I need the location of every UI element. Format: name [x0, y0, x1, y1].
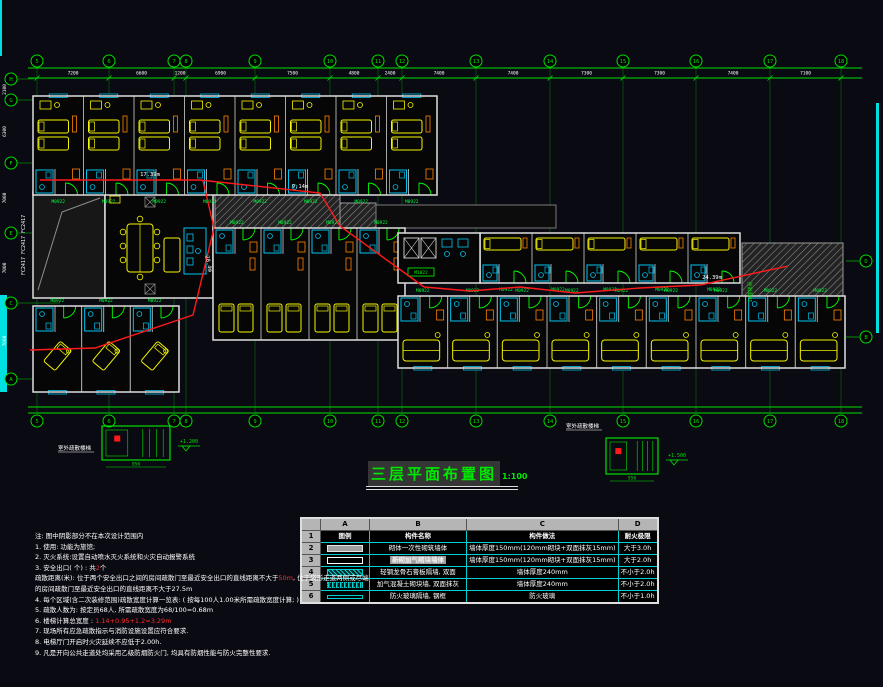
grid-bubble-E: E — [5, 227, 17, 239]
rect-element — [597, 296, 647, 368]
title-underline — [366, 489, 518, 490]
rect-element — [876, 103, 879, 333]
room-unit: M0922 — [497, 288, 547, 370]
room-unit: M0922 — [130, 298, 179, 394]
room-unit: M0922 — [336, 94, 387, 205]
dimension-text: 6600 — [136, 71, 147, 77]
grid-bubble-A: A — [5, 373, 17, 385]
text-element: 18 — [838, 59, 845, 65]
rect-element — [646, 296, 696, 368]
rect-element — [636, 233, 688, 283]
distance-label: 24.39m — [702, 275, 723, 281]
rect-element — [336, 96, 387, 195]
rect-element — [448, 296, 498, 368]
text-element: G — [9, 98, 12, 104]
rect-element — [795, 296, 845, 368]
note-line: 2. 灭火系统:设置自动喷水灭火系统和火灾自动报警系统 — [35, 552, 369, 563]
td-element: 墙体厚度150mm(120mm砌块+双面抹灰15mm) — [467, 555, 619, 567]
grid-bubble-5-bottom: 5 — [31, 415, 43, 427]
drawing-scale: 1:100 — [502, 472, 527, 481]
note-line: 3. 安全出口( 个) : 共2个 — [35, 563, 369, 574]
lounge-room — [105, 192, 213, 298]
door-label: M0922 — [203, 199, 217, 205]
grid-bubble-11-bottom: 11 — [372, 415, 384, 427]
td-element: 砌体一次性砌筑墙体 — [370, 543, 467, 555]
span-element: 1.14+0.95+1.2=3.29m — [95, 617, 171, 625]
td-element: 轻钢龙骨石膏板隔墙, 双面 — [370, 567, 467, 579]
grid-bubble-14-bottom: 14 — [544, 415, 556, 427]
span-element: 3. 安全出口( 个) : 共 — [35, 564, 96, 572]
stair-label: 1#楼梯间 — [747, 281, 754, 302]
text-element: F — [9, 161, 12, 167]
path-element — [670, 460, 678, 465]
grid-bubble-11: 11 — [372, 55, 384, 67]
grid-bubble-7: 7 — [168, 55, 180, 67]
grid-bubble-16-bottom: 16 — [690, 415, 702, 427]
td-element: 大于2.0h — [618, 555, 658, 567]
note-line: 注: 图中阴影部分不在本次设计范围内 — [35, 531, 369, 542]
room-unit: M0922 — [547, 288, 597, 370]
door-label: M0922 — [148, 298, 162, 304]
grid-bubble-8-bottom: 8 — [180, 415, 192, 427]
door-label: M0922 — [764, 288, 778, 294]
level-mark: +1.200 — [180, 439, 198, 445]
note-line: 8. 电梯厅门开启时火灾延续不应低于2.00h. — [35, 637, 369, 648]
rect-element — [398, 296, 448, 368]
td-element: A — [321, 518, 370, 531]
distance-label: 9.14m — [292, 184, 309, 190]
grid-bubble-7-bottom: 7 — [168, 415, 180, 427]
room-unit: M0922 — [584, 233, 636, 293]
dimension-text: 4800 — [349, 71, 360, 77]
door-label: M0922 — [230, 220, 244, 226]
text-element: D — [864, 259, 867, 265]
grid-bubble-13: 13 — [470, 55, 482, 67]
text-element: 8 — [184, 59, 187, 65]
grid-bubble-15: 15 — [617, 55, 629, 67]
room-unit: M0922 — [387, 94, 438, 205]
text-element: 15 — [620, 59, 627, 65]
span-element: 疏散距离(米): 位于两个安全出口之间的房间疏散门至最近安全出口的直线距离不大于 — [35, 574, 278, 582]
grid-bubble-10: 10 — [324, 55, 336, 67]
door-label: M0922 — [664, 288, 678, 294]
rect-element — [130, 306, 179, 392]
td-element: 构件名称 — [370, 531, 467, 543]
drawing-title: 三层平面布置图 — [368, 461, 500, 486]
td-element: 加气混凝土砌块墙, 双面抹灰 — [370, 579, 467, 591]
rect-element — [82, 306, 131, 392]
dimension-text: 2400 — [385, 71, 396, 77]
stair-detail-label: 室外疏散楼梯 — [566, 422, 600, 430]
level-mark: +1.500 — [668, 453, 686, 459]
rect-element — [606, 438, 658, 474]
text-element: 7 — [172, 419, 175, 425]
text-element: 14 — [547, 59, 554, 65]
td-element: 耐火极限 — [618, 531, 658, 543]
span-element: 7. 现场所有应急疏散指示与消防设施设置应符合要求. — [35, 627, 188, 635]
room-unit: M0922 — [82, 298, 131, 394]
room-unit: M0922 — [532, 233, 584, 293]
room-unit: M0922 — [33, 94, 84, 205]
grid-bubble-16: 16 — [690, 55, 702, 67]
grid-bubble-12-bottom: 12 — [396, 415, 408, 427]
text-element: 14 — [547, 419, 554, 425]
text-element: 8 — [184, 419, 187, 425]
drawing-title-block: 三层平面布置图1:100 — [368, 461, 527, 486]
td-element: 不小于2.0h — [618, 567, 658, 579]
dimension-text: 7300 — [581, 71, 592, 77]
block-right-bottom: M0922M0922M0922M0922M0922M0922M0922M0922… — [398, 288, 845, 370]
note-line: 1. 使用: 功能为旅馆; — [35, 542, 369, 553]
text-element: H — [9, 77, 12, 83]
door-label: M0922 — [278, 220, 292, 226]
room-unit: M0922 — [696, 288, 746, 370]
note-line: 5. 疏散人数为: 按定员68人, 所需疏散宽度为68/100=0.68m — [35, 605, 369, 616]
door-label: M0922 — [405, 199, 419, 205]
td-element: 不小于1.0h — [618, 591, 658, 604]
room-unit: M0922 — [84, 94, 135, 205]
text-element: 950 — [628, 476, 636, 482]
td-element: 墙体厚度240mm — [467, 579, 619, 591]
td-element: D — [618, 518, 658, 531]
grid-bubble-C: C — [5, 297, 17, 309]
rect-element — [114, 436, 120, 442]
stair-detail-2: 室外疏散楼梯950+1.500 — [566, 422, 688, 482]
room-unit: M0922 — [480, 233, 532, 293]
general-notes: 注: 图中阴影部分不在本次设计范围内1. 使用: 功能为旅馆;2. 灭火系统:设… — [35, 531, 369, 658]
rect-element — [0, 0, 2, 56]
text-element: 6 — [107, 59, 110, 65]
grid-bubble-H: H — [5, 73, 17, 85]
rect-element — [480, 233, 532, 283]
rect-element — [340, 203, 376, 228]
dimension-text: 6300 — [2, 126, 8, 137]
door-label: M0922 — [374, 220, 388, 226]
door-label: M0922 — [102, 199, 116, 205]
door-label: M0922 — [51, 199, 65, 205]
td-element: B — [370, 518, 467, 531]
text-element: 7 — [172, 59, 175, 65]
grid-bubble-17: 17 — [764, 55, 776, 67]
room-unit: M0922 — [134, 94, 185, 205]
grid-bubble-D: D — [860, 255, 872, 267]
text-element: 16 — [693, 419, 700, 425]
span-element: , 位于袋形走道两侧或尽端 — [293, 574, 369, 582]
text-element: 6 — [107, 419, 110, 425]
dimension-text: 7400 — [508, 71, 519, 77]
td-element: 防火玻璃 — [467, 591, 619, 604]
room-unit: M0922 — [398, 288, 448, 370]
text-element: E — [9, 231, 12, 237]
room-unit: M0922 — [795, 288, 845, 370]
td-element — [301, 518, 321, 531]
grid-bubble-15-bottom: 15 — [617, 415, 629, 427]
note-line: 7. 现场所有应急疏散指示与消防设施设置应符合要求. — [35, 626, 369, 637]
span-element: 9. 凡是开向公共走道处均采用乙级防烟防火门, 均具有防烟性能与防火完整性要求. — [35, 649, 270, 657]
door-label: M0922 — [253, 199, 267, 205]
td-element: 不小于2.0h — [618, 579, 658, 591]
span-element: 4. 每个区域(含二次装修范围)疏散宽度计算一览表: ( 按每100人1.00米… — [35, 596, 299, 604]
rect-element — [584, 233, 636, 283]
span-element: 6. 楼梯计算总宽度 : — [35, 617, 95, 625]
shaded-void-room — [33, 192, 105, 298]
grid-bubble-8: 8 — [180, 55, 192, 67]
door-label: M0922 — [714, 288, 728, 294]
dimension-text: 6900 — [215, 71, 226, 77]
text-element: 11 — [375, 59, 382, 65]
dimension-text: 7000 — [2, 262, 8, 273]
door-label: M0922 — [515, 288, 529, 294]
span-element: 50m — [278, 574, 293, 582]
room-unit: M0922 — [646, 288, 696, 370]
text-element: 9 — [253, 419, 256, 425]
note-line: 9. 凡是开向公共走道处均采用乙级防烟防火门, 均具有防烟性能与防火完整性要求. — [35, 648, 369, 659]
grid-bubble-18-bottom: 18 — [835, 415, 847, 427]
span-element: 2. 灭火系统:设置自动喷水灭火系统和火灾自动报警系统 — [35, 553, 195, 561]
rect-element — [387, 96, 438, 195]
rect-element — [213, 228, 261, 340]
note-line: 6. 楼梯计算总宽度 : 1.14+0.95+1.2=3.29m — [35, 616, 369, 627]
span-element: 8. 电梯厅门开启时火灾延续不应低于2.00h. — [35, 638, 161, 646]
rect-element — [376, 205, 556, 228]
text-element: 11 — [375, 419, 382, 425]
door-label: M0922 — [304, 199, 318, 205]
span-element: 1. 使用: 功能为旅馆; — [35, 543, 95, 551]
grid-bubble-9-bottom: 9 — [249, 415, 261, 427]
grid-bubble-10-bottom: 10 — [324, 415, 336, 427]
door-label: M0922 — [354, 199, 368, 205]
grid-bubble-14: 14 — [544, 55, 556, 67]
rect-element — [497, 296, 547, 368]
dimension-text: 7100 — [800, 71, 811, 77]
grid-bubble-B: B — [860, 331, 872, 343]
stair-detail-label: 室外疏散楼梯 — [58, 444, 92, 452]
grid-bubble-6-bottom: 6 — [103, 415, 115, 427]
grid-bubble-6: 6 — [103, 55, 115, 67]
td-element: 墙体厚度240mm — [467, 567, 619, 579]
title-underline — [366, 486, 518, 487]
span-element: 注: 图中阴影部分不在本次设计范围内 — [35, 532, 143, 540]
rect-element — [105, 192, 213, 298]
span-element: 的房间疏散门至最近安全出口的直线距离不大于27.5m — [35, 585, 192, 593]
dimension-text: 7200 — [68, 71, 79, 77]
room-unit: M0922 — [448, 288, 498, 370]
door-label: M0922 — [152, 199, 166, 205]
cad-floor-plan-screen: { "colors":{"grid":"#00e000","wall":"#a8… — [0, 0, 883, 687]
text-element: 10 — [327, 419, 334, 425]
text-element: 13 — [473, 59, 480, 65]
text-element: 12 — [399, 419, 406, 425]
path-element — [182, 446, 190, 451]
grid-bubble-9: 9 — [249, 55, 261, 67]
block-right-top: M0922M0922M0922M0922M0922 — [480, 233, 740, 293]
td-element: 大于3.0h — [618, 543, 658, 555]
text-element: 13 — [473, 419, 480, 425]
rect-element — [235, 96, 286, 195]
span-element: 新砌加气砌块墙体 — [390, 556, 446, 564]
td-element: 新砌加气砌块墙体 — [370, 555, 467, 567]
td-element: 构件做法 — [467, 531, 619, 543]
room-unit: M0922 — [597, 288, 647, 370]
td-element: 防火玻璃隔墙, 钢框 — [370, 591, 467, 604]
grid-bubble-17-bottom: 17 — [764, 415, 776, 427]
text-element: 10 — [327, 59, 334, 65]
rect-element — [610, 442, 627, 470]
block-bottom-left: M0922M0922M0922 — [33, 298, 179, 394]
grid-bubble-18: 18 — [835, 55, 847, 67]
span-element: 个 — [100, 564, 107, 572]
floor-plan-drawing: 5566778899101011111212131314141515161617… — [0, 0, 883, 520]
td-element: 墙体厚度150mm(120mm砌块+双面抹灰15mm) — [467, 543, 619, 555]
text-element: 18 — [838, 419, 845, 425]
text-element: 17 — [767, 419, 774, 425]
grid-bubble-5: 5 — [31, 55, 43, 67]
door-label: M0922 — [51, 298, 65, 304]
rect-element — [309, 228, 357, 340]
dimension-text: 7500 — [287, 71, 298, 77]
text-element: 17 — [767, 59, 774, 65]
window-type-label: FC2417 FC2417 FC2417 — [21, 215, 27, 275]
text-element: 15 — [620, 419, 627, 425]
rect-element — [286, 96, 337, 195]
td-element: C — [467, 518, 619, 531]
rect-element — [615, 448, 621, 454]
room-unit: M0922 — [261, 220, 309, 340]
room-unit: M0922 — [185, 94, 236, 205]
door-label: M0922 — [813, 288, 827, 294]
room-unit: M0922 — [309, 220, 357, 340]
rect-element — [547, 296, 597, 368]
rect-element — [746, 296, 796, 368]
text-element: 9 — [253, 59, 256, 65]
tr-element: ABCD — [301, 518, 658, 531]
block-top-wing: M0922M0922M0922M0922M0922M0922M0922M0922 — [33, 94, 437, 205]
rect-element — [532, 233, 584, 283]
note-line: 4. 每个区域(含二次装修范围)疏散宽度计算一览表: ( 按每100人1.00米… — [35, 595, 369, 606]
dimension-text: 7400 — [728, 71, 739, 77]
elevator-lobby: M1022 — [398, 233, 480, 283]
stair-detail-1: 室外疏散楼梯950+1.200 — [58, 426, 200, 468]
door-label: M0922 — [99, 298, 113, 304]
rect-element — [261, 228, 309, 340]
text-element: 5 — [35, 419, 38, 425]
note-line: 的房间疏散门至最近安全出口的直线距离不大于27.5m — [35, 584, 369, 595]
dimension-text: 2100 — [2, 84, 8, 95]
grid-bubble-13-bottom: 13 — [470, 415, 482, 427]
rect-element — [106, 430, 128, 456]
span-element: 5. 疏散人数为: 按定员68人, 所需疏散宽度为68/100=0.68m — [35, 606, 213, 614]
grid-bubble-F: F — [5, 157, 17, 169]
text-element: M1022 — [414, 270, 428, 276]
distance-label: 17.39m — [140, 172, 161, 178]
rect-element — [696, 296, 746, 368]
room-unit: M0922 — [33, 298, 82, 394]
rect-element — [33, 192, 105, 298]
block-mid-block: M0922M0922M0922M0922 — [213, 220, 405, 340]
text-element: C — [9, 301, 12, 307]
dimension-text: 1200 — [175, 71, 186, 77]
text-element: 5 — [35, 59, 38, 65]
grid-bubble-12: 12 — [396, 55, 408, 67]
dimension-text: 7000 — [2, 192, 8, 203]
text-element: 16 — [693, 59, 700, 65]
room-unit: M0922 — [636, 233, 688, 293]
note-line: 疏散距离(米): 位于两个安全出口之间的房间疏散门至最近安全出口的直线距离不大于… — [35, 573, 369, 584]
text-element: 950 — [132, 462, 140, 468]
door-label: M0922 — [416, 288, 430, 294]
rect-element — [102, 426, 170, 460]
dimension-text: 7300 — [654, 71, 665, 77]
text-element: 12 — [399, 59, 406, 65]
dimension-text: 7600 — [2, 335, 8, 346]
dimension-text: 7400 — [434, 71, 445, 77]
room-unit: M0922 — [213, 220, 261, 340]
